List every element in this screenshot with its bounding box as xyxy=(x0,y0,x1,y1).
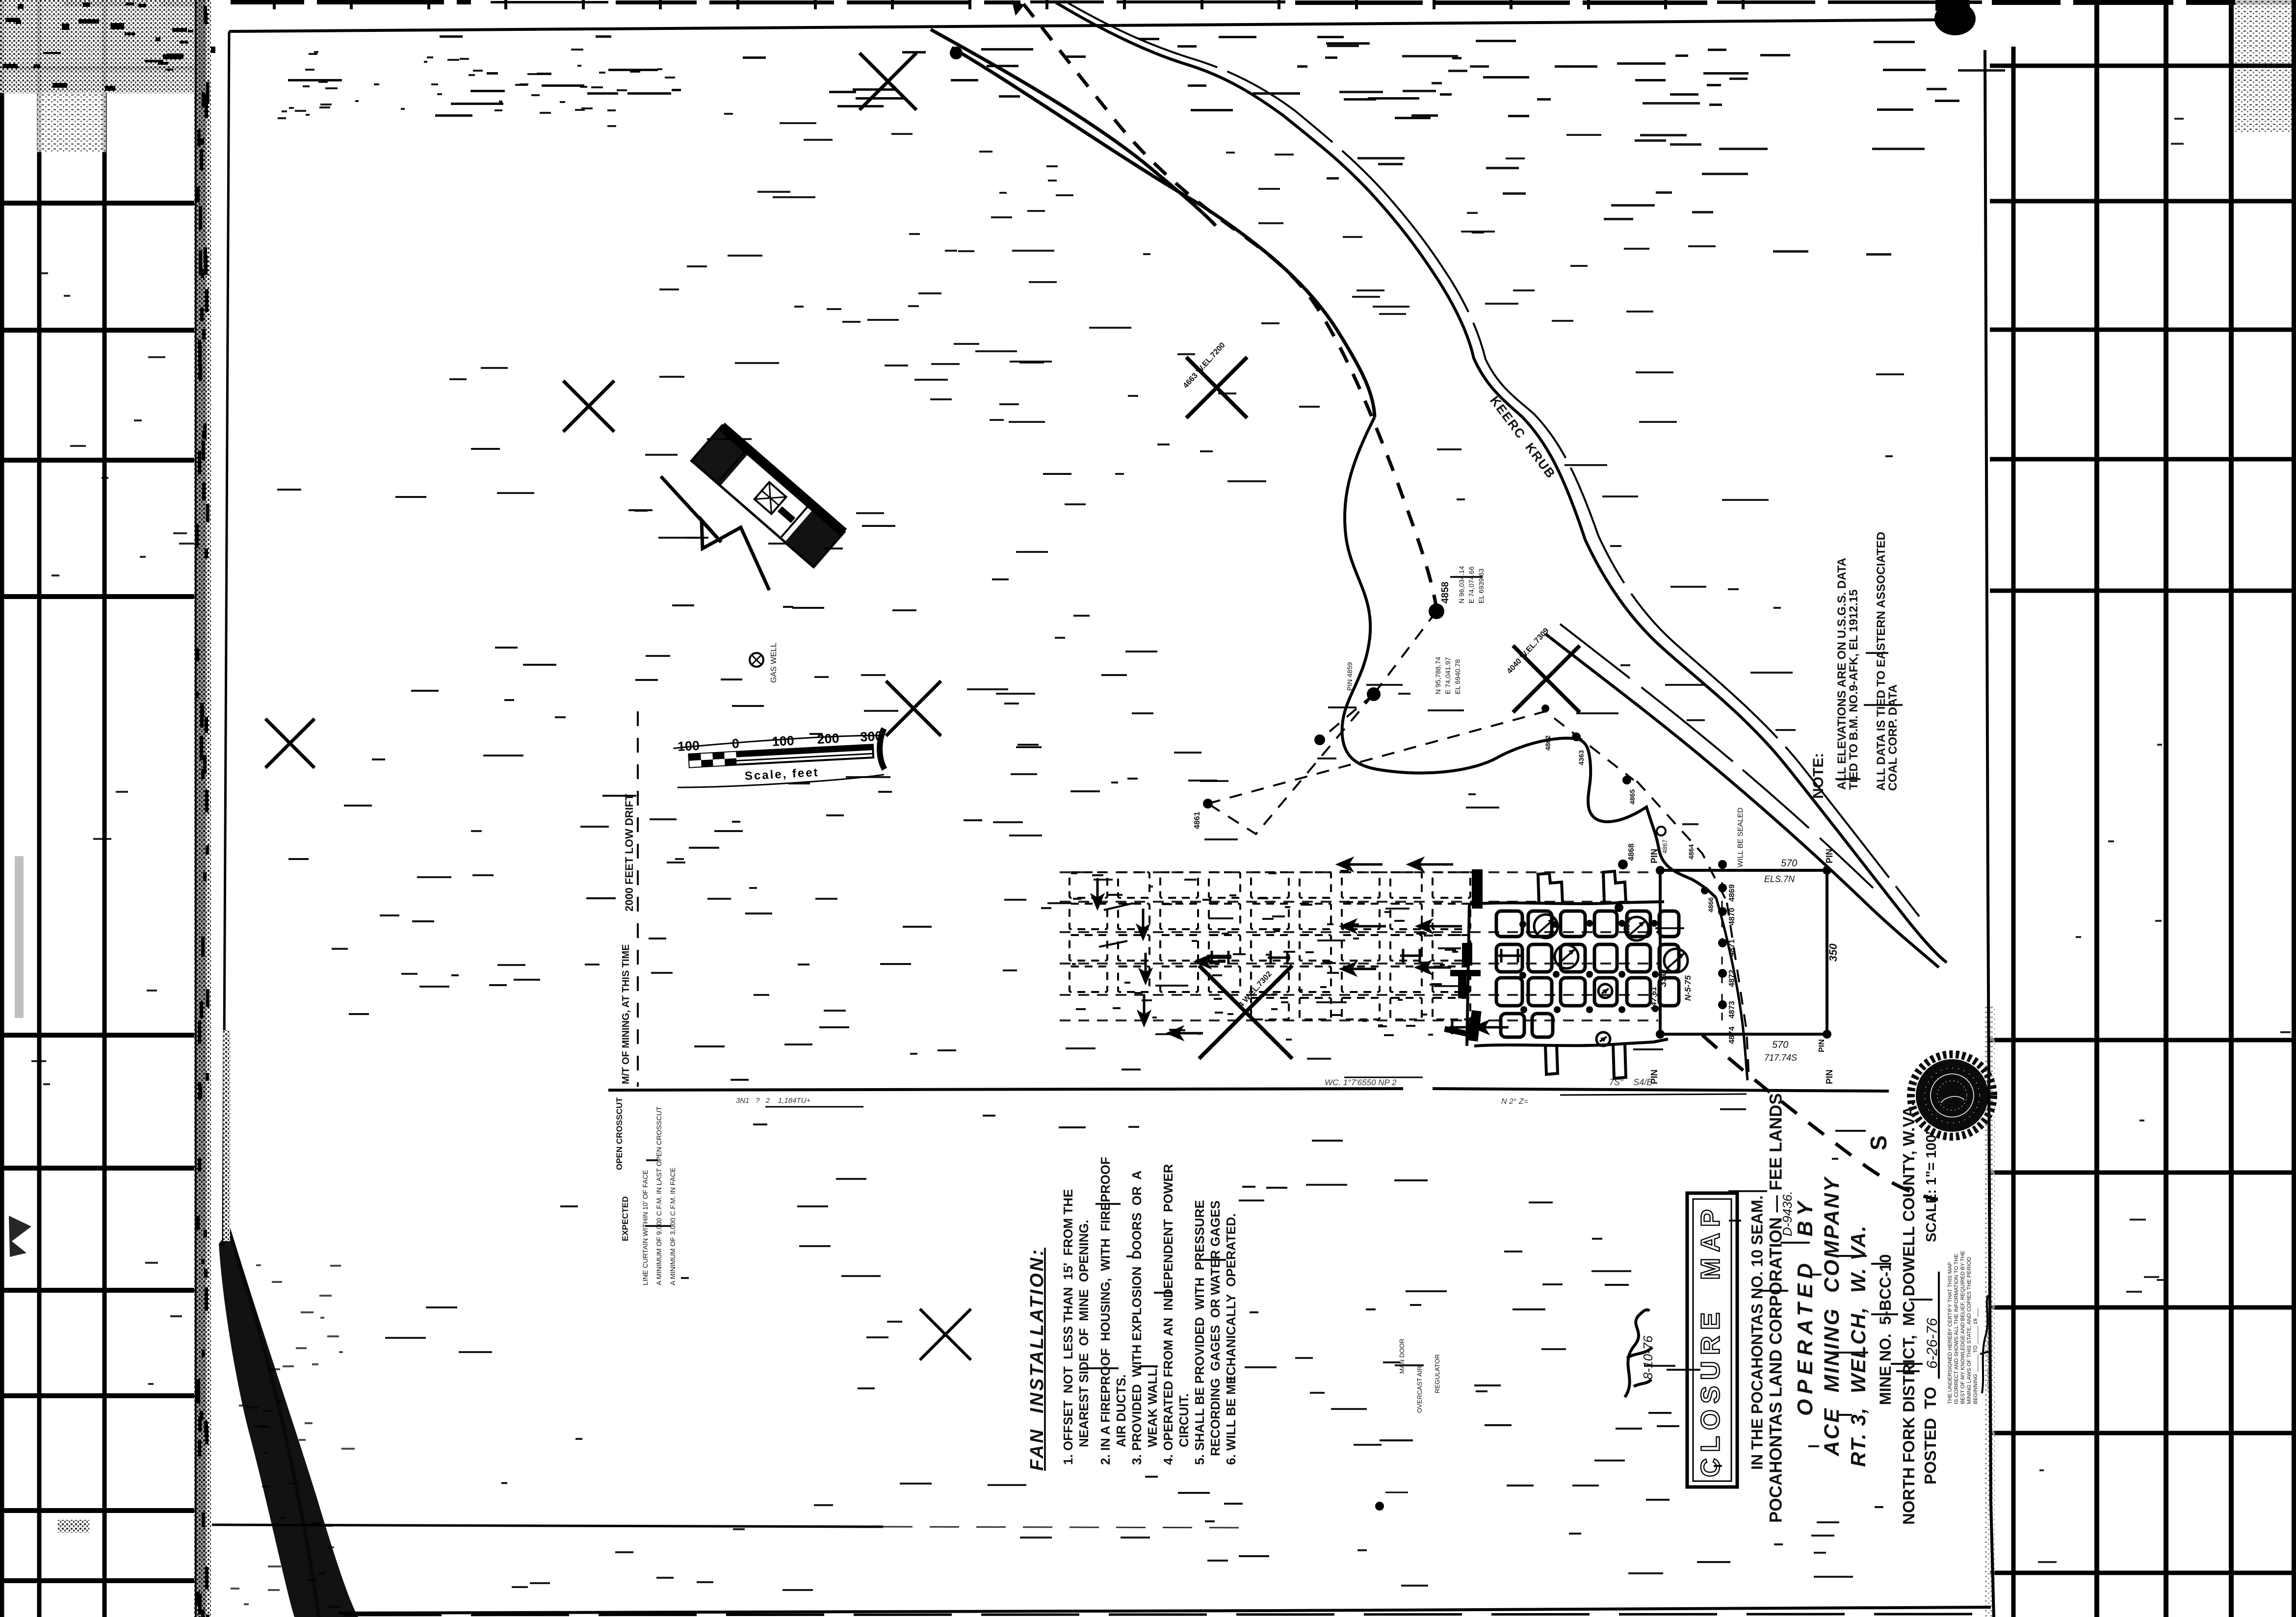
svg-text:RECORDING GAGES OR WATER GAG: RECORDING GAGES OR WATER GAGES xyxy=(1208,1200,1223,1456)
svg-text:E 74,041.97: E 74,041.97 xyxy=(1444,657,1452,694)
svg-text:KEERC KRUB: KEERC KRUB xyxy=(1487,393,1559,482)
svg-text:PIN: PIN xyxy=(1649,849,1659,863)
svg-text:A MINIMUM OF 9,000 C.F.M. IN L: A MINIMUM OF 9,000 C.F.M. IN LAST OPEN C… xyxy=(655,1106,663,1285)
svg-text:570: 570 xyxy=(1781,858,1797,869)
svg-text:REGULATOR: REGULATOR xyxy=(1434,1354,1441,1393)
svg-text:4865: 4865 xyxy=(1628,789,1636,805)
svg-text:WEAK WALL.: WEAK WALL. xyxy=(1145,1365,1160,1447)
svg-text:CIRCUIT.: CIRCUIT. xyxy=(1176,1393,1191,1447)
svg-text:ACE MINING COMPANY: ACE MINING COMPANY xyxy=(1820,1176,1844,1457)
svg-text:PIN: PIN xyxy=(1825,849,1834,863)
svg-text:4871: 4871 xyxy=(1728,939,1736,957)
svg-text:POSTED TO: POSTED TO xyxy=(1921,1387,1939,1485)
svg-text:8-10-76: 8-10-76 xyxy=(1641,1335,1655,1380)
svg-text:S: S xyxy=(1866,1135,1891,1150)
svg-text:MINING LAWS OF THIS STATE, AND: MINING LAWS OF THIS STATE, AND COPIES TH… xyxy=(1966,1257,1972,1404)
svg-text:LINE CURTAIN WITHIN 10' OF FAC: LINE CURTAIN WITHIN 10' OF FACE xyxy=(641,1170,649,1285)
svg-text:N 2° Z=: N 2° Z= xyxy=(1501,1097,1528,1106)
svg-text:4040 W.EL.7309: 4040 W.EL.7309 xyxy=(1505,626,1550,676)
svg-text:4869: 4869 xyxy=(1728,884,1736,902)
svg-text:4363: 4363 xyxy=(1577,750,1585,765)
svg-text:4864: 4864 xyxy=(1687,844,1695,860)
svg-text:200: 200 xyxy=(817,731,840,747)
svg-text:ALL DATA IS TIED TO EASTERN AS: ALL DATA IS TIED TO EASTERN ASSOCIATED xyxy=(1875,532,1888,791)
svg-text:350: 350 xyxy=(1827,943,1839,962)
svg-text:N 95,788.74: N 95,788.74 xyxy=(1434,657,1442,694)
svg-text:N 96,034.14: N 96,034.14 xyxy=(1458,566,1465,603)
svg-text:GAS WELL: GAS WELL xyxy=(770,643,778,683)
svg-text:3N1 ? 2 1,184TU+: 3N1 ? 2 1,184TU+ xyxy=(736,1096,810,1105)
svg-text:D-9436.: D-9436. xyxy=(1780,1191,1795,1237)
svg-text:4873: 4873 xyxy=(1728,1001,1736,1018)
svg-text:MAN DOOR: MAN DOOR xyxy=(1398,1339,1406,1374)
svg-text:3. PROVIDED WITH EXPLOSION D: 3. PROVIDED WITH EXPLOSION DOORS OR A xyxy=(1129,1171,1144,1465)
svg-text:5. SHALL BE PROVIDED WITH PR: 5. SHALL BE PROVIDED WITH PRESSURE xyxy=(1192,1200,1207,1465)
svg-text:SCALE: 1"= 100': SCALE: 1"= 100' xyxy=(1924,1131,1939,1242)
svg-text:FAN INSTALLATION:: FAN INSTALLATION: xyxy=(1027,1248,1047,1471)
svg-text:NOTE:: NOTE: xyxy=(1810,753,1826,799)
svg-text:ELS.7N: ELS.7N xyxy=(1764,874,1795,884)
svg-text:2000 FEET LOW DRIFT: 2000 FEET LOW DRIFT xyxy=(623,794,635,912)
svg-text:E 74,074.66: E 74,074.66 xyxy=(1467,566,1475,603)
svg-text:4868: 4868 xyxy=(1627,843,1636,861)
svg-text:EL 6940.78: EL 6940.78 xyxy=(1454,659,1461,694)
svg-text:THE UNDERSIGNED HEREBY CERTIFY: THE UNDERSIGNED HEREBY CERTIFY THAT THIS… xyxy=(1947,1262,1953,1404)
svg-text:N-5-75: N-5-75 xyxy=(1683,975,1693,1001)
svg-text:MINE NO. 5-BCC-10: MINE NO. 5-BCC-10 xyxy=(1877,1254,1894,1405)
svg-text:WILL BE SEALED: WILL BE SEALED xyxy=(1736,808,1745,867)
svg-text:4869: 4869 xyxy=(1623,916,1632,932)
svg-text:RT. 3, WELCH, W. VA.: RT. 3, WELCH, W. VA. xyxy=(1847,1225,1870,1467)
svg-text:Scale, feet: Scale, feet xyxy=(744,766,819,783)
svg-text:4. OPERATED FROM AN INDEPENDE: 4. OPERATED FROM AN INDEPENDENT POWER xyxy=(1161,1164,1175,1465)
svg-text:WC. 1°7'6550 NP 2: WC. 1°7'6550 NP 2 xyxy=(1325,1078,1397,1087)
svg-text:COAL CORP. DATA: COAL CORP. DATA xyxy=(1886,684,1900,791)
svg-text:NEAREST SIDE OF MINE OPENIN: NEAREST SIDE OF MINE OPENING. xyxy=(1076,1220,1091,1447)
svg-text:POCAHONTAS LAND CORPORATION —: POCAHONTAS LAND CORPORATION — FEE LANDS xyxy=(1766,1093,1785,1523)
svg-text:PIN: PIN xyxy=(1649,1069,1659,1084)
svg-text:LICENSED LAND SURVEYOR: LICENSED LAND SURVEYOR xyxy=(1987,1325,1992,1392)
svg-text:PIN: PIN xyxy=(1818,1039,1826,1052)
svg-text:M/T OF MINING, AT THIS TIME: M/T OF MINING, AT THIS TIME xyxy=(621,944,631,1084)
svg-text:1. OFFSET NOT LESS THAN 15': 1. OFFSET NOT LESS THAN 15' FROM THE xyxy=(1061,1189,1075,1465)
svg-text:4867: 4867 xyxy=(1661,839,1669,854)
svg-text:TIED TO B.M. NO.9-AFK, EL 1912: TIED TO B.M. NO.9-AFK, EL 1912.15 xyxy=(1847,589,1860,790)
svg-text:AIR DUCTS.: AIR DUCTS. xyxy=(1114,1374,1128,1447)
svg-text:6. WILL BE MECHANICALLY OPERA: 6. WILL BE MECHANICALLY OPERATED. xyxy=(1224,1213,1238,1465)
svg-text:2. IN A FIREPROOF HOUSING, W: 2. IN A FIREPROOF HOUSING, WITH FIREPROO… xyxy=(1098,1157,1113,1465)
svg-text:4866: 4866 xyxy=(1707,897,1715,913)
svg-text:NORTH FORK DISTRICT, MC DOWEL: NORTH FORK DISTRICT, MC DOWELL COUNTY, W… xyxy=(1900,1101,1918,1525)
svg-text:BEST OF MY KNOWLEDGE AND BELIE: BEST OF MY KNOWLEDGE AND BELIEF, REQUIRE… xyxy=(1960,1251,1966,1404)
svg-text:BEGINNING ______ TO ______ 19: BEGINNING ______ TO ______ 19 ___ xyxy=(1973,1307,1979,1404)
svg-text:A MINIMUM OF 3,000 C.F.M. IN F: A MINIMUM OF 3,000 C.F.M. IN FACE xyxy=(669,1168,677,1285)
svg-text:EXPECTED: EXPECTED xyxy=(621,1196,630,1241)
svg-text:EL 6939.63: EL 6939.63 xyxy=(1477,569,1485,603)
svg-text:PIN: PIN xyxy=(1825,1069,1834,1084)
svg-text:4861: 4861 xyxy=(1193,811,1201,829)
svg-text:717.74S: 717.74S xyxy=(1764,1053,1797,1063)
svg-text:IN THE POCAHONTAS NO. 10 SEAM.: IN THE POCAHONTAS NO. 10 SEAM. xyxy=(1748,1196,1766,1470)
svg-text:4874: 4874 xyxy=(1728,1026,1736,1044)
svg-text:IS CORRECT AND SHOWS ALL THE I: IS CORRECT AND SHOWS ALL THE INFORMATION… xyxy=(1954,1254,1959,1404)
svg-text:PIN 4859: PIN 4859 xyxy=(1346,662,1354,691)
svg-text:OPERATED BY: OPERATED BY xyxy=(1793,1197,1817,1416)
svg-text:350: 350 xyxy=(1658,971,1669,987)
svg-text:147.61: 147.61 xyxy=(1650,987,1658,1011)
svg-text:570: 570 xyxy=(1772,1040,1788,1050)
svg-text:OPEN CROSSCUT: OPEN CROSSCUT xyxy=(615,1097,624,1170)
svg-text:CLOSURE MAP: CLOSURE MAP xyxy=(1696,1203,1725,1477)
svg-text:4872: 4872 xyxy=(1728,969,1736,987)
svg-text:4862: 4862 xyxy=(1544,735,1552,751)
svg-text:OVERCAST AIR: OVERCAST AIR xyxy=(1416,1366,1423,1413)
svg-text:100: 100 xyxy=(772,733,795,749)
svg-text:4870: 4870 xyxy=(1728,908,1736,925)
svg-text:4858: 4858 xyxy=(1440,582,1451,604)
svg-text:ALL ELEVATIONS ARE ON U.S.G.S.: ALL ELEVATIONS ARE ON U.S.G.S. DATA xyxy=(1835,558,1849,790)
